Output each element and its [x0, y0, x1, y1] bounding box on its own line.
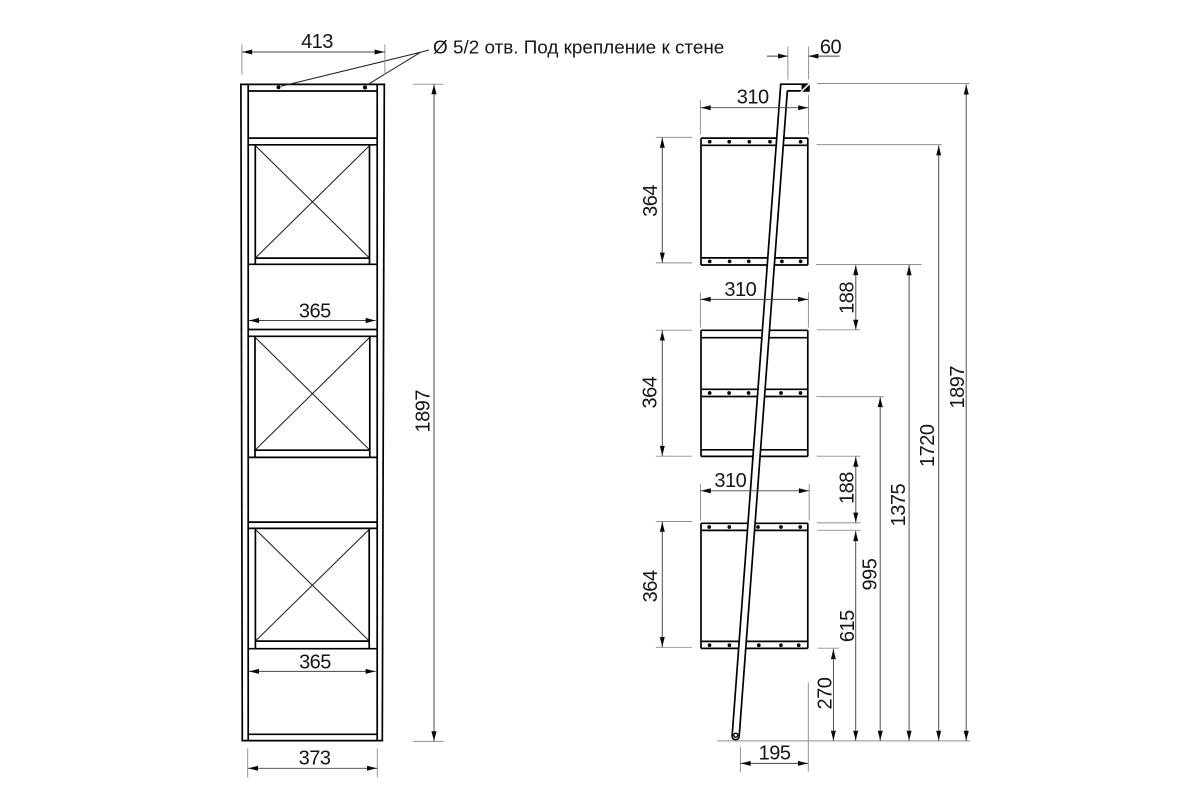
svg-text:364: 364	[640, 570, 662, 602]
svg-text:Ø 5/2 отв. Под крепление к сте: Ø 5/2 отв. Под крепление к стене	[433, 37, 724, 58]
svg-text:413: 413	[301, 31, 333, 53]
svg-text:270: 270	[815, 677, 837, 709]
svg-text:364: 364	[639, 376, 661, 408]
svg-text:615: 615	[837, 610, 859, 642]
svg-text:60: 60	[820, 36, 842, 58]
svg-text:188: 188	[836, 282, 858, 314]
svg-text:1720: 1720	[917, 424, 939, 467]
svg-text:310: 310	[714, 470, 746, 492]
svg-text:195: 195	[759, 743, 791, 765]
svg-text:310: 310	[737, 87, 769, 109]
svg-text:365: 365	[299, 652, 331, 674]
svg-text:1375: 1375	[888, 483, 910, 526]
svg-text:364: 364	[640, 185, 662, 217]
svg-text:188: 188	[836, 472, 858, 504]
svg-text:1897: 1897	[947, 366, 969, 409]
svg-text:373: 373	[299, 747, 331, 769]
svg-text:995: 995	[859, 558, 881, 590]
svg-text:365: 365	[299, 300, 331, 322]
svg-text:1897: 1897	[413, 390, 435, 433]
svg-text:310: 310	[724, 279, 756, 301]
